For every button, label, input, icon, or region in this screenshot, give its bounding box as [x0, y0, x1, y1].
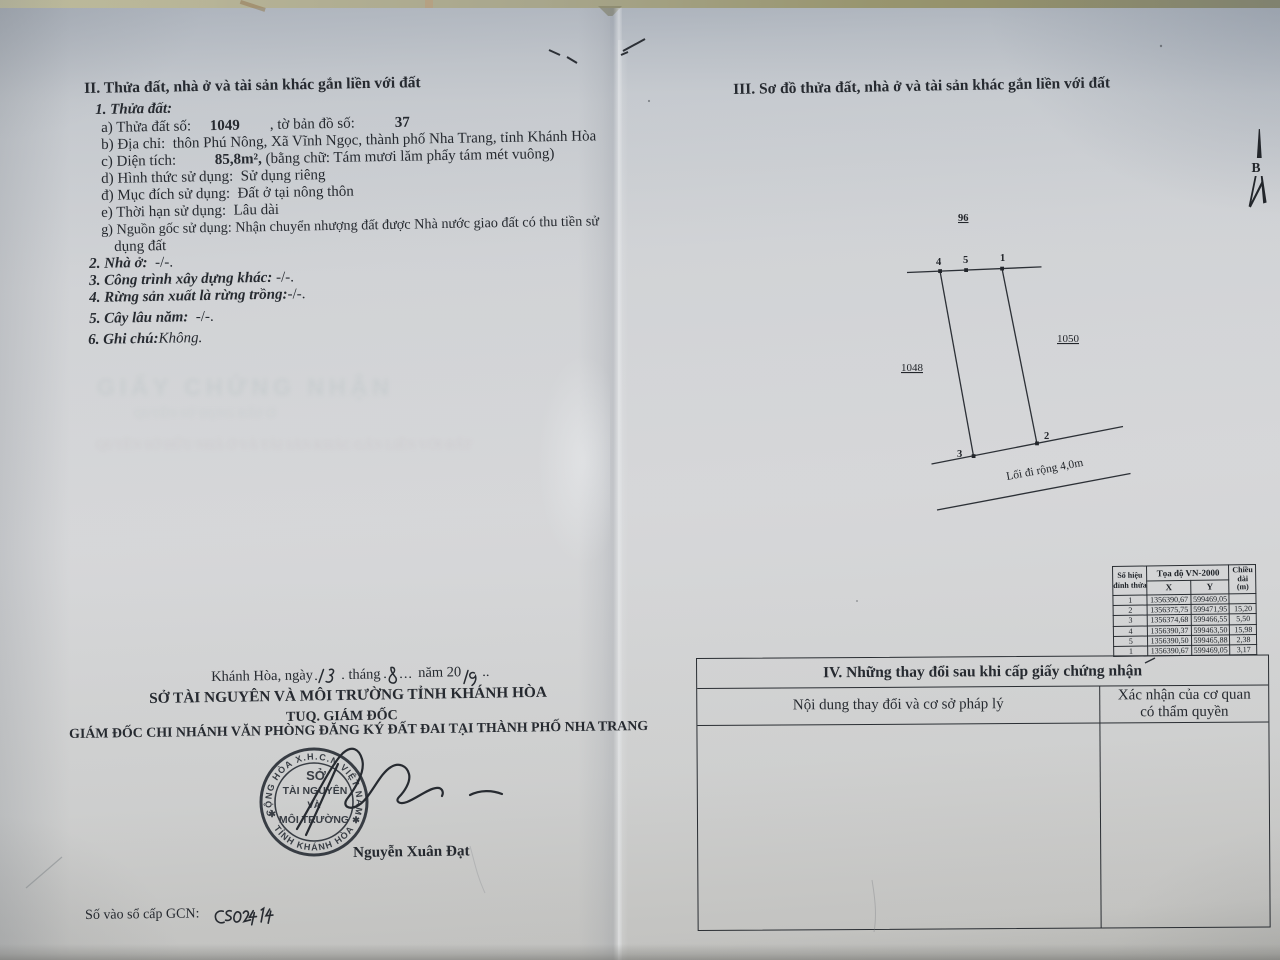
svg-text:4: 4	[936, 257, 942, 268]
svg-text:1: 1	[1000, 253, 1005, 264]
svg-text:✱: ✱	[352, 815, 360, 825]
svg-text:1048: 1048	[901, 362, 924, 374]
svg-text:✱: ✱	[268, 809, 276, 819]
svg-text:5: 5	[963, 255, 968, 266]
svg-text:Lối đi rộng 4,0m: Lối đi rộng 4,0m	[1005, 456, 1084, 483]
svg-text:B: B	[1252, 160, 1261, 175]
svg-text:3: 3	[957, 449, 962, 460]
svg-text:96: 96	[958, 213, 969, 224]
svg-text:1050: 1050	[1057, 333, 1080, 345]
svg-text:2: 2	[1044, 431, 1049, 442]
